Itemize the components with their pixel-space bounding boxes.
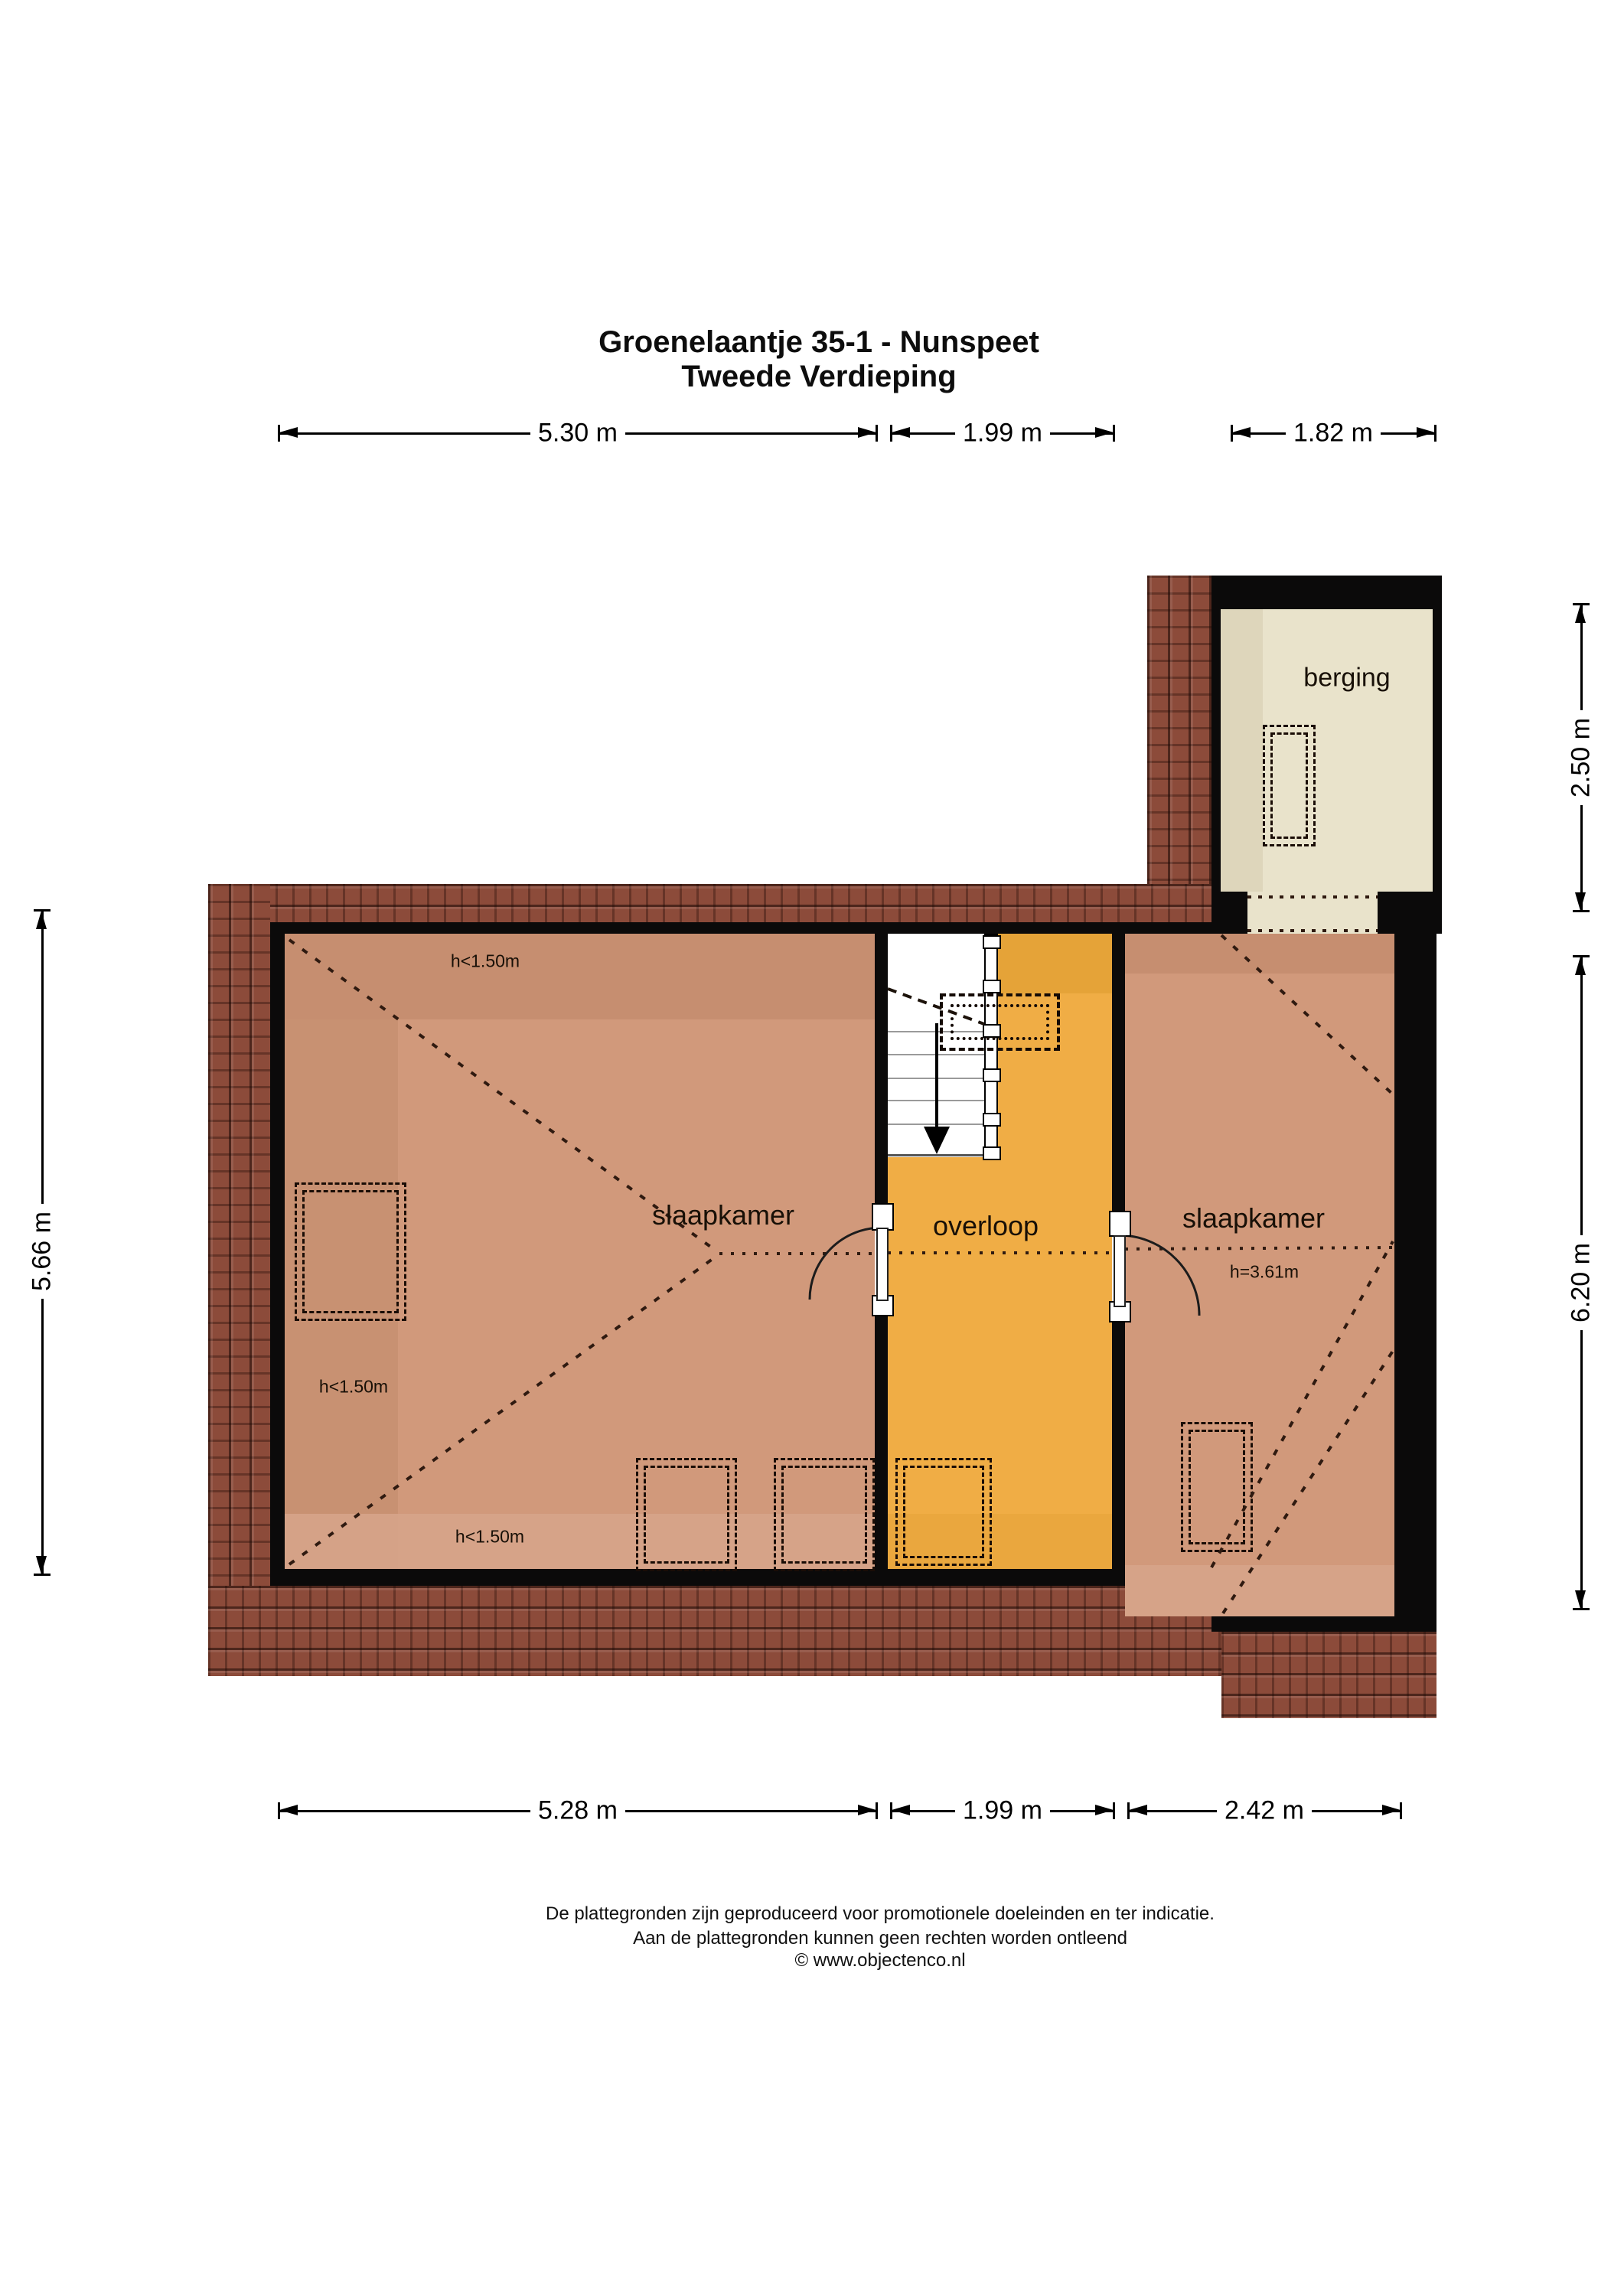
room-label-storage: berging	[1303, 664, 1390, 693]
room-label-bedroom-right: slaapkamer	[1182, 1202, 1325, 1234]
height-label: h<1.50m	[451, 951, 520, 972]
door-frame-block	[872, 1203, 894, 1231]
roof-hip-line	[289, 1255, 718, 1564]
door-leaf	[876, 1228, 889, 1301]
footer-disclaimer-1: De plattegronden zijn geproduceerd voor …	[0, 1903, 1624, 1925]
roof-hip-line	[1223, 1349, 1394, 1613]
roof-hip-line	[1221, 935, 1391, 1093]
stairs-cut-line	[888, 989, 984, 1024]
height-label: h<1.50m	[455, 1527, 524, 1548]
height-label: h=3.61m	[1230, 1262, 1299, 1283]
height-label: h<1.50m	[319, 1377, 388, 1397]
room-label-landing: overloop	[933, 1210, 1039, 1242]
footer-copyright: © www.objectenco.nl	[0, 1950, 1624, 1971]
roof-hip-line	[1211, 1241, 1393, 1567]
door-swing-arc	[810, 1228, 882, 1300]
room-label-bedroom-left: slaapkamer	[652, 1199, 794, 1231]
floorplan-page: Groenelaantje 35-1 - Nunspeet Tweede Ver…	[0, 0, 1624, 2296]
door-leaf	[1114, 1235, 1126, 1307]
door-frame-block	[1109, 1211, 1131, 1237]
down-arrow-icon	[924, 1127, 950, 1154]
footer-disclaimer-2: Aan de plattegronden kunnen geen rechten…	[0, 1928, 1624, 1949]
